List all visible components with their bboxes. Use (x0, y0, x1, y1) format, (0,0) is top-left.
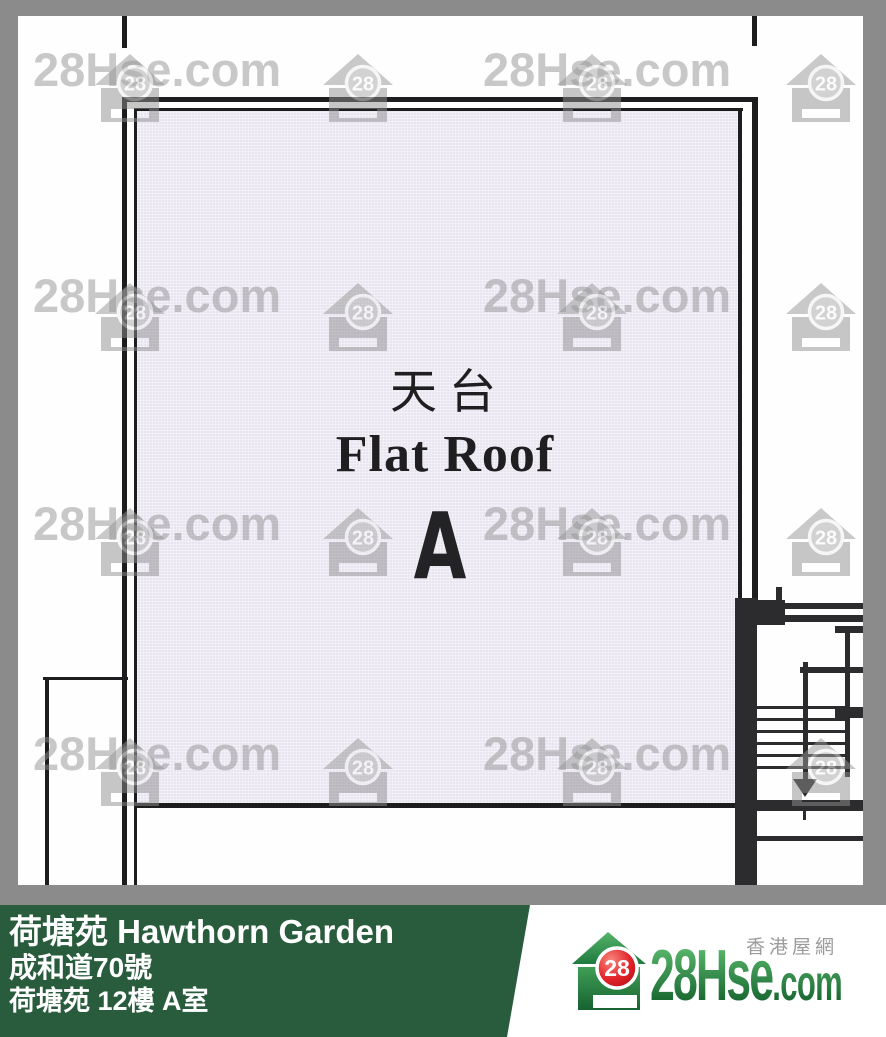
roof-wall-bottom (134, 803, 737, 808)
stair-arrow-shaft (803, 662, 808, 780)
floorplan-image: 天台 Flat Roof A 28Hse.com28Hse.com28Hse.c… (0, 0, 886, 1037)
ledge-wall-vertical (45, 677, 49, 885)
roof-wall-top-outer (122, 97, 758, 102)
watermark-text: 28Hse.com (33, 46, 281, 93)
watermark-badge-number: 28 (124, 74, 146, 96)
watermark-badge-number: 28 (815, 303, 837, 325)
frame-border-left (0, 0, 18, 888)
stair-tread (757, 754, 845, 757)
stair-direction-arrow (793, 779, 817, 797)
28hse-logo-icon: 28 (570, 930, 648, 1010)
frame-border-top (0, 0, 886, 16)
ledge-wall-horizontal (43, 677, 128, 680)
estate-address: 成和道70號 (9, 953, 152, 984)
watermark-house-icon: 28 (785, 52, 857, 122)
watermark-house-icon: 28 (785, 506, 857, 576)
stair-tread (757, 706, 845, 709)
stair-tread (757, 742, 845, 745)
roof-wall-left-inner (134, 108, 137, 885)
unit-letter-label: A (403, 506, 477, 589)
watermark-badge-number: 28 (815, 528, 837, 550)
footer-bar: 荷塘苑 Hawthorn Garden 成和道70號 荷塘苑 12樓 A室 28 (0, 905, 886, 1037)
stair-landing-line (800, 667, 863, 673)
area-label-english: Flat Roof (334, 429, 556, 481)
roof-wall-right-outer (752, 97, 758, 600)
site-label-chinese: 香港屋網 (746, 932, 838, 959)
roof-wall-left-outer (122, 97, 127, 885)
stair-wall-top-line-a (783, 603, 863, 609)
area-label-chinese: 天台 (349, 370, 549, 417)
watermark-text: 28Hse.com (483, 46, 731, 93)
stair-wall-stub-up (776, 587, 782, 602)
stair-wall-top-line-b (783, 615, 863, 622)
party-wall-stub-right (752, 16, 757, 46)
logo-badge-number: 28 (604, 955, 630, 981)
frame-border-bottom (0, 885, 886, 905)
watermark-badge-number: 28 (352, 74, 374, 96)
stair-wall-vertical-main (735, 598, 757, 885)
watermark-badge-number: 28 (815, 74, 837, 96)
estate-title: 荷塘苑 Hawthorn Garden (9, 914, 394, 950)
roof-wall-right-inner (738, 108, 742, 600)
party-wall-stub-left (122, 16, 127, 48)
estate-unit: 荷塘苑 12樓 A室 (9, 987, 209, 1017)
roof-wall-top-inner (134, 108, 743, 111)
stair-wall-bottom-thick (735, 800, 863, 811)
watermark-house-icon: 28 (785, 281, 857, 351)
frame-border-right (863, 0, 886, 888)
watermark-badge-number: 28 (586, 74, 608, 96)
stair-string-vertical (845, 630, 850, 777)
stair-tread (757, 718, 845, 721)
brand-wordmark-suffix: .com (772, 955, 842, 1011)
stair-tread (757, 730, 845, 733)
stair-tread (757, 766, 845, 769)
stair-lower-line (757, 836, 863, 841)
stair-wall-top-thick (735, 600, 785, 625)
